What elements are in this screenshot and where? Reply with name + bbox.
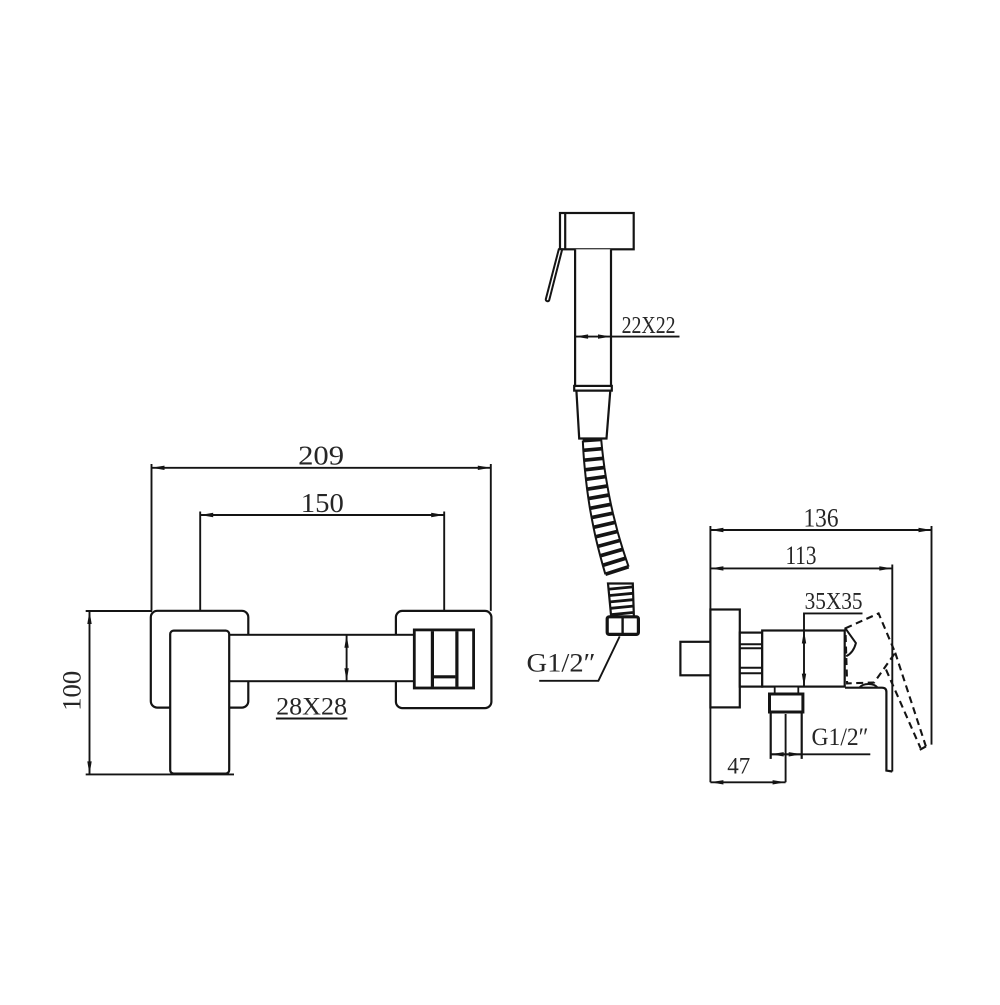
svg-text:28X28: 28X28	[276, 694, 347, 721]
svg-text:35X35: 35X35	[805, 589, 863, 615]
svg-text:113: 113	[786, 541, 817, 570]
svg-text:47: 47	[727, 754, 750, 779]
svg-text:136: 136	[804, 504, 839, 533]
svg-text:150: 150	[301, 488, 344, 518]
svg-text:G1/2″: G1/2″	[527, 649, 596, 678]
svg-text:100: 100	[58, 671, 87, 711]
svg-text:22X22: 22X22	[622, 313, 676, 339]
svg-text:G1/2″: G1/2″	[812, 724, 869, 751]
svg-text:209: 209	[298, 441, 344, 471]
